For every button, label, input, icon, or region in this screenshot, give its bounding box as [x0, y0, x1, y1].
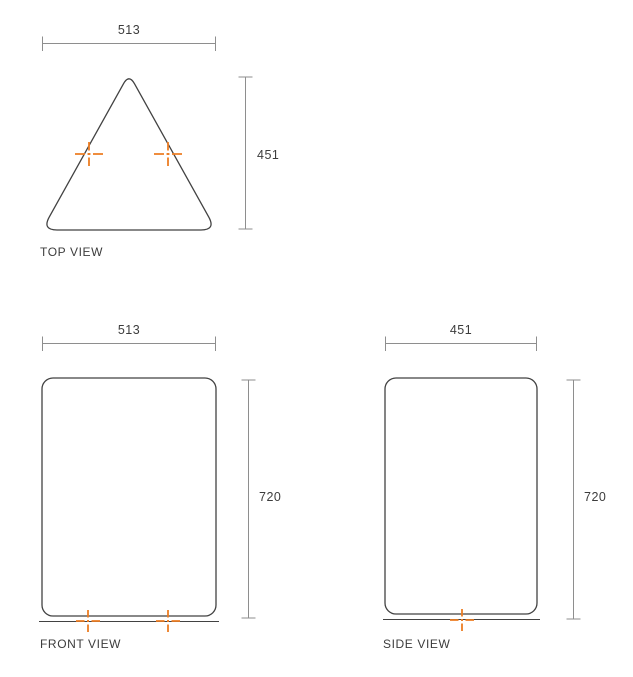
- top-view-outline: [47, 79, 211, 230]
- leg-position-marker: [450, 609, 474, 631]
- front-view-group: 513 720 FRONT VIEW: [39, 323, 281, 651]
- drawing-canvas: 513 451 TOP VIEW: [0, 0, 633, 677]
- top-view-label: TOP VIEW: [40, 245, 103, 259]
- front-view-height-dimension-line: [242, 380, 256, 618]
- front-view-width-value: 513: [118, 323, 140, 337]
- side-view-depth-value: 451: [450, 323, 472, 337]
- top-view-depth-value: 451: [257, 148, 279, 162]
- top-view-group: 513 451 TOP VIEW: [40, 23, 279, 259]
- leg-position-marker: [76, 610, 100, 632]
- side-view-group: 451 720 SIDE VIEW: [383, 323, 606, 651]
- front-view-height-value: 720: [259, 490, 281, 504]
- side-view-height-dimension-line: [567, 380, 581, 619]
- front-view-outline: [42, 378, 216, 616]
- side-view-depth-dimension-line: [385, 337, 537, 352]
- side-view-outline: [385, 378, 537, 614]
- front-view-label: FRONT VIEW: [40, 637, 121, 651]
- top-view-width-value: 513: [118, 23, 140, 37]
- side-view-label: SIDE VIEW: [383, 637, 450, 651]
- technical-drawing: 513 451 TOP VIEW: [0, 0, 633, 677]
- top-view-depth-dimension-line: [239, 77, 253, 229]
- leg-position-marker: [156, 610, 180, 632]
- side-view-height-value: 720: [584, 490, 606, 504]
- front-view-width-dimension-line: [42, 337, 216, 352]
- top-view-width-dimension-line: [42, 37, 216, 52]
